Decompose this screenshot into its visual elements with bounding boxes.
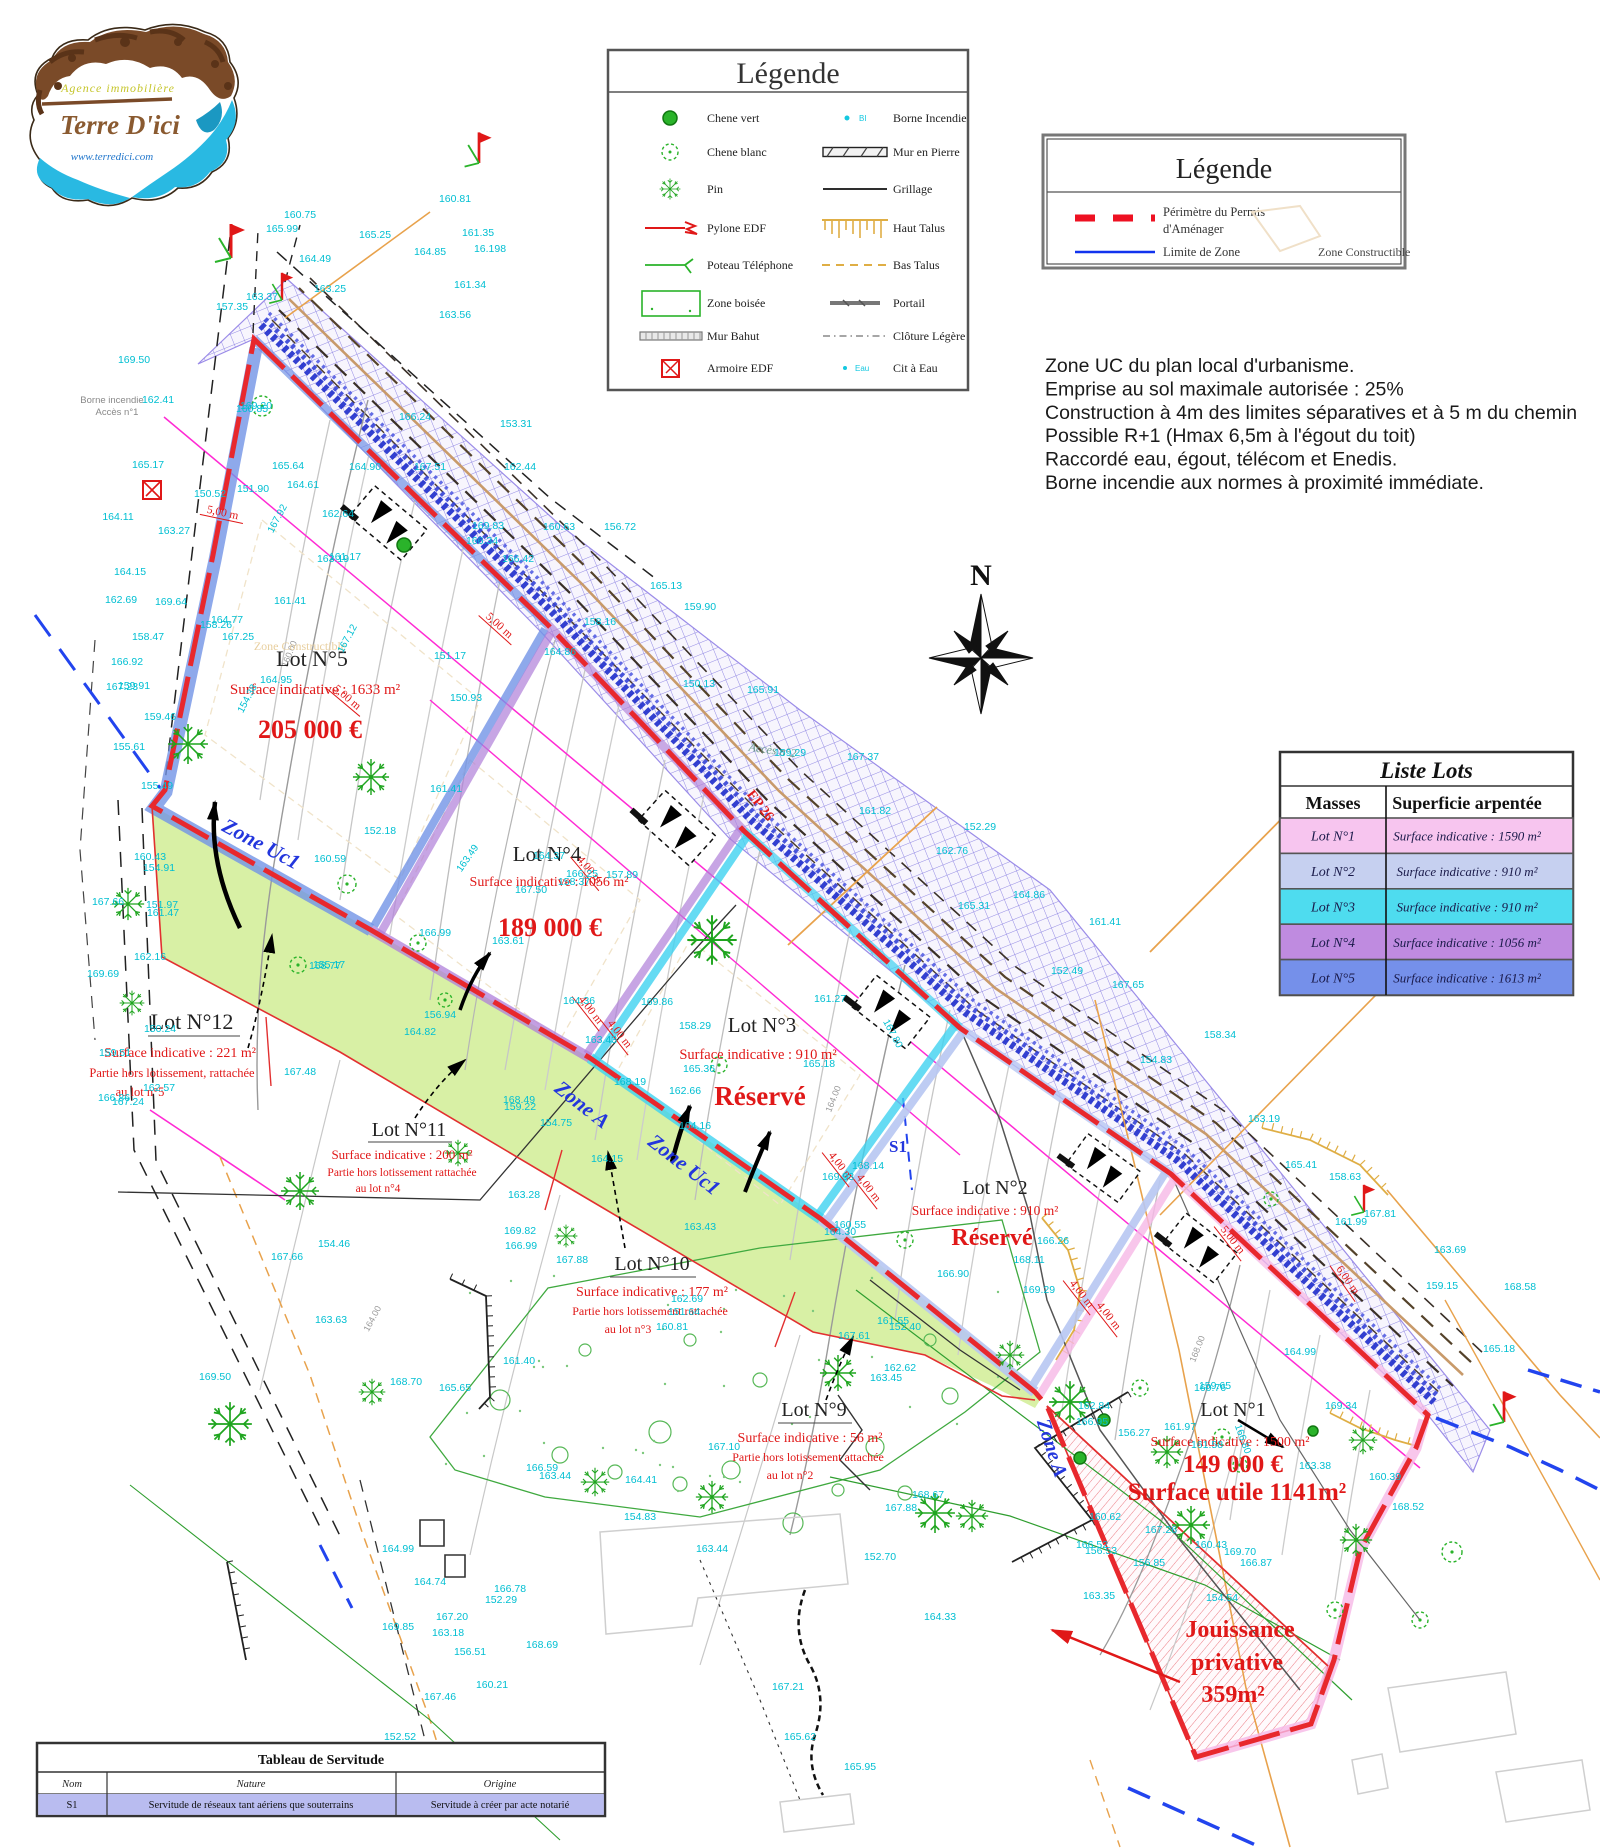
svg-text:167.81: 167.81: [1364, 1208, 1396, 1220]
svg-text:Accès n°1: Accès n°1: [96, 407, 139, 418]
svg-text:166.92: 166.92: [111, 656, 143, 668]
svg-text:Limite de Zone: Limite de Zone: [1163, 245, 1241, 259]
svg-text:Servitude à créer par acte not: Servitude à créer par acte notarié: [431, 1800, 570, 1811]
svg-text:169.50: 169.50: [199, 1371, 231, 1383]
svg-text:S1: S1: [889, 1137, 907, 1156]
svg-text:Surface utile 1141m²: Surface utile 1141m²: [1128, 1479, 1347, 1506]
svg-text:159.29: 159.29: [774, 747, 806, 759]
svg-text:165.13: 165.13: [650, 580, 682, 592]
svg-text:152.52: 152.52: [384, 1731, 416, 1743]
svg-text:152.29: 152.29: [964, 821, 996, 833]
svg-text:163.25: 163.25: [314, 283, 346, 295]
svg-text:Terre D'ici: Terre D'ici: [60, 110, 180, 140]
svg-text:169.93: 169.93: [822, 1171, 854, 1183]
svg-text:166.90: 166.90: [937, 1268, 969, 1280]
svg-text:163.69: 163.69: [1434, 1244, 1466, 1256]
svg-text:16.198: 16.198: [474, 243, 506, 255]
svg-text:152.70: 152.70: [864, 1551, 896, 1563]
svg-text:164.99: 164.99: [382, 1543, 414, 1555]
svg-text:161.41: 161.41: [274, 595, 306, 607]
svg-text:164.61: 164.61: [287, 479, 319, 491]
svg-text:167.66: 167.66: [92, 896, 124, 908]
svg-text:150.93: 150.93: [450, 692, 482, 704]
svg-text:160.39: 160.39: [1369, 1471, 1401, 1483]
svg-text:159.22: 159.22: [504, 1101, 536, 1113]
svg-text:Zone Constructible: Zone Constructible: [1318, 245, 1410, 259]
svg-text:164.82: 164.82: [404, 1026, 436, 1038]
svg-text:160.62: 160.62: [1089, 1511, 1121, 1523]
svg-text:164.77: 164.77: [211, 614, 243, 626]
svg-text:Partie hors lotissement rattac: Partie hors lotissement rattachée: [572, 1304, 728, 1318]
svg-text:164.86: 164.86: [1013, 889, 1045, 901]
svg-text:153.31: 153.31: [500, 418, 532, 430]
svg-text:165.99: 165.99: [266, 223, 298, 235]
svg-text:163.35: 163.35: [1083, 1590, 1115, 1602]
svg-text:Agence immobilière: Agence immobilière: [60, 81, 175, 95]
svg-text:Zone Constructible: Zone Constructible: [254, 639, 346, 653]
svg-text:169.82: 169.82: [504, 1225, 536, 1237]
svg-text:Surface indicative : 910 m²: Surface indicative : 910 m²: [1396, 864, 1538, 879]
svg-text:164.86: 164.86: [544, 646, 576, 658]
svg-text:161.41: 161.41: [430, 783, 462, 795]
svg-text:167.46: 167.46: [424, 1691, 456, 1703]
svg-text:162.66: 162.66: [669, 1085, 701, 1097]
svg-text:166.95: 166.95: [1076, 1416, 1108, 1428]
svg-text:Surface indicative : 910 m²: Surface indicative : 910 m²: [1396, 900, 1538, 915]
svg-text:Lot N°3: Lot N°3: [728, 1013, 796, 1037]
svg-text:161.82: 161.82: [859, 805, 891, 817]
svg-text:163.27: 163.27: [158, 525, 190, 537]
svg-text:Légende: Légende: [1176, 154, 1272, 185]
svg-text:Lot N°10: Lot N°10: [614, 1253, 689, 1275]
svg-text:Construction à 4m des limites: Construction à 4m des limites séparative…: [1045, 402, 1577, 424]
svg-text:166.34: 166.34: [466, 535, 498, 547]
svg-text:168.11: 168.11: [1013, 1254, 1044, 1266]
svg-text:152.40: 152.40: [889, 1321, 921, 1333]
svg-text:168.70: 168.70: [390, 1376, 422, 1388]
svg-text:160.63: 160.63: [543, 521, 575, 533]
svg-text:149 000 €: 149 000 €: [1183, 1451, 1284, 1478]
svg-text:166.99: 166.99: [505, 1240, 537, 1252]
svg-text:Surface indicative : 56 m²: Surface indicative : 56 m²: [738, 1431, 883, 1446]
svg-text:Servitude de réseaux tant aéri: Servitude de réseaux tant aériens que so…: [149, 1800, 354, 1811]
svg-text:359m²: 359m²: [1201, 1682, 1264, 1708]
svg-text:152.49: 152.49: [1051, 965, 1083, 977]
svg-text:165.62: 165.62: [784, 1731, 816, 1743]
svg-text:152.29: 152.29: [485, 1594, 517, 1606]
svg-text:163.61: 163.61: [492, 935, 524, 947]
svg-text:159.46: 159.46: [144, 711, 176, 723]
svg-text:167.65: 167.65: [1112, 979, 1144, 991]
svg-text:Partie hors lotissement, ratta: Partie hors lotissement, rattachée: [89, 1066, 255, 1080]
svg-text:Surface indicative : 200 m²: Surface indicative : 200 m²: [331, 1147, 472, 1162]
svg-text:Bas Talus: Bas Talus: [893, 258, 940, 272]
svg-text:164.74: 164.74: [414, 1576, 446, 1588]
svg-text:165.18: 165.18: [1483, 1343, 1515, 1355]
svg-text:166.42: 166.42: [502, 553, 534, 565]
svg-text:Possible R+1 (Hmax 6,5m à l'ég: Possible R+1 (Hmax 6,5m à l'égout du toi…: [1045, 425, 1416, 447]
svg-text:Lot N°2: Lot N°2: [962, 1177, 1027, 1199]
svg-text:154.54: 154.54: [1206, 1592, 1238, 1604]
svg-text:160.85: 160.85: [236, 403, 268, 415]
svg-text:168.58: 168.58: [1504, 1281, 1536, 1293]
svg-text:Lot N°1: Lot N°1: [1200, 1399, 1265, 1421]
svg-text:164.85: 164.85: [414, 246, 446, 258]
svg-text:Partie hors lotissement rattac: Partie hors lotissement rattachée: [327, 1167, 476, 1179]
svg-text:Surface indicative : 1590 m²: Surface indicative : 1590 m²: [1393, 829, 1542, 844]
svg-text:157.89: 157.89: [606, 869, 638, 881]
svg-text:165.64: 165.64: [272, 460, 304, 472]
svg-text:160.81: 160.81: [439, 193, 471, 205]
svg-text:Borne incendie aux normes à pr: Borne incendie aux normes à proximité im…: [1045, 472, 1484, 494]
svg-text:167.26: 167.26: [1145, 1524, 1177, 1536]
svg-text:Périmètre du Permis: Périmètre du Permis: [1163, 205, 1265, 219]
svg-text:164.99: 164.99: [1284, 1346, 1316, 1358]
svg-text:161.40: 161.40: [503, 1355, 535, 1367]
svg-text:164.33: 164.33: [924, 1611, 956, 1623]
svg-text:Borne Incendie: Borne Incendie: [893, 111, 967, 125]
svg-text:Réservé: Réservé: [714, 1081, 805, 1111]
svg-text:158.37: 158.37: [558, 876, 590, 888]
svg-text:Surface indicative : 1056 m²: Surface indicative : 1056 m²: [1393, 935, 1542, 950]
svg-text:Poteau Téléphone: Poteau Téléphone: [707, 258, 793, 272]
svg-text:150.52: 150.52: [194, 488, 226, 500]
svg-text:161.41: 161.41: [1089, 916, 1121, 928]
svg-text:151.90: 151.90: [237, 483, 269, 495]
svg-text:N: N: [970, 559, 992, 592]
svg-text:160.21: 160.21: [476, 1679, 508, 1691]
svg-text:205 000 €: 205 000 €: [258, 715, 362, 744]
svg-text:163.45: 163.45: [870, 1372, 902, 1384]
svg-text:157.35: 157.35: [216, 301, 248, 313]
svg-text:163.28: 163.28: [508, 1189, 540, 1201]
svg-text:165.18: 165.18: [803, 1058, 835, 1070]
svg-text:168.19: 168.19: [614, 1076, 646, 1088]
svg-text:163.63: 163.63: [315, 1314, 347, 1326]
svg-text:Clôture Légère: Clôture Légère: [893, 329, 965, 343]
svg-text:155.61: 155.61: [113, 741, 145, 753]
svg-text:Borne incendie: Borne incendie: [80, 395, 143, 406]
svg-text:Surface indicative : 177 m²: Surface indicative : 177 m²: [576, 1285, 728, 1300]
svg-text:Mur en Pierre: Mur en Pierre: [893, 145, 960, 159]
svg-text:166.59: 166.59: [526, 1462, 558, 1474]
svg-text:161.17: 161.17: [329, 551, 361, 563]
svg-text:Lot N°4: Lot N°4: [1310, 936, 1355, 951]
svg-text:Lot N°2: Lot N°2: [1310, 865, 1355, 880]
svg-text:162.64: 162.64: [322, 508, 354, 520]
svg-text:162.41: 162.41: [142, 394, 174, 406]
svg-text:Pylone EDF: Pylone EDF: [707, 221, 766, 235]
svg-text:158.16: 158.16: [584, 616, 616, 628]
svg-text:Masses: Masses: [1306, 793, 1361, 813]
svg-text:www.terredici.com: www.terredici.com: [71, 151, 154, 163]
svg-text:158.47: 158.47: [132, 631, 164, 643]
svg-text:163.38: 163.38: [1299, 1460, 1331, 1472]
svg-text:167.25: 167.25: [222, 631, 254, 643]
svg-text:158.34: 158.34: [1204, 1029, 1236, 1041]
svg-text:Portail: Portail: [893, 296, 926, 310]
svg-text:privative: privative: [1191, 1650, 1283, 1676]
svg-text:156.94: 156.94: [424, 1009, 456, 1021]
svg-text:163.43: 163.43: [684, 1221, 716, 1233]
svg-text:165.65: 165.65: [439, 1382, 471, 1394]
svg-text:166.99: 166.99: [419, 927, 451, 939]
svg-text:162.76: 162.76: [936, 845, 968, 857]
svg-text:162.69: 162.69: [671, 1293, 703, 1305]
svg-text:165.41: 165.41: [1285, 1159, 1317, 1171]
svg-text:165.25: 165.25: [359, 229, 391, 241]
svg-text:169.70: 169.70: [1224, 1546, 1256, 1558]
svg-text:167.48: 167.48: [284, 1066, 316, 1078]
svg-text:164.36: 164.36: [563, 995, 595, 1007]
svg-text:Eau: Eau: [855, 364, 869, 373]
svg-text:Surface indicative : 1056 m²: Surface indicative : 1056 m²: [470, 875, 629, 890]
svg-text:166.24: 166.24: [399, 411, 431, 423]
svg-text:167.50: 167.50: [515, 884, 547, 896]
svg-text:Zone UC du plan local d'urbani: Zone UC du plan local d'urbanisme.: [1045, 355, 1354, 377]
svg-text:160.75: 160.75: [284, 209, 316, 221]
svg-text:164.15: 164.15: [114, 566, 146, 578]
svg-text:167.20: 167.20: [436, 1611, 468, 1623]
svg-text:163.19: 163.19: [1248, 1113, 1280, 1125]
svg-text:Emprise au sol maximale autori: Emprise au sol maximale autorisée : 25%: [1045, 378, 1404, 400]
svg-text:Légende: Légende: [736, 57, 839, 90]
svg-text:Chene blanc: Chene blanc: [707, 145, 767, 159]
svg-text:Surface indicative : 1613 m²: Surface indicative : 1613 m²: [1393, 970, 1542, 985]
svg-text:156.51: 156.51: [454, 1646, 486, 1658]
svg-text:151.64: 151.64: [668, 1306, 700, 1318]
svg-text:162.57: 162.57: [143, 1082, 175, 1094]
svg-text:au lot n°4: au lot n°4: [356, 1183, 401, 1195]
svg-text:167.23: 167.23: [106, 681, 138, 693]
svg-text:166.87: 166.87: [1240, 1557, 1272, 1569]
svg-text:169.85: 169.85: [382, 1621, 414, 1633]
svg-text:168.67: 168.67: [912, 1489, 944, 1501]
svg-text:162.16: 162.16: [134, 951, 166, 963]
svg-text:165.31: 165.31: [958, 900, 990, 912]
svg-text:164.90: 164.90: [349, 461, 381, 473]
svg-text:169.86: 169.86: [641, 996, 673, 1008]
svg-text:159.15: 159.15: [1426, 1280, 1458, 1292]
svg-text:163.18: 163.18: [432, 1627, 464, 1639]
svg-text:154.46: 154.46: [318, 1238, 350, 1250]
svg-text:169.69: 169.69: [87, 968, 119, 980]
svg-text:160.43: 160.43: [1195, 1539, 1227, 1551]
svg-text:160.55: 160.55: [834, 1219, 866, 1231]
svg-text:Liste Lots: Liste Lots: [1379, 758, 1473, 783]
svg-text:Lot N°3: Lot N°3: [1310, 901, 1355, 916]
svg-text:162.69: 162.69: [105, 594, 137, 606]
svg-text:166.26: 166.26: [1037, 1235, 1069, 1247]
svg-text:164.11: 164.11: [102, 511, 133, 523]
svg-text:168.14: 168.14: [852, 1160, 884, 1172]
svg-text:Lot N°9: Lot N°9: [781, 1399, 846, 1421]
svg-text:158.63: 158.63: [1329, 1171, 1361, 1183]
svg-text:Lot N°11: Lot N°11: [372, 1119, 446, 1141]
svg-text:156.85: 156.85: [1133, 1557, 1165, 1569]
svg-text:163.56: 163.56: [439, 309, 471, 321]
svg-text:164.16: 164.16: [679, 1120, 711, 1132]
svg-text:d'Aménager: d'Aménager: [1163, 222, 1224, 236]
svg-text:169.83: 169.83: [472, 520, 504, 532]
svg-text:161.27: 161.27: [814, 993, 846, 1005]
svg-text:Zone boisée: Zone boisée: [707, 296, 765, 310]
svg-text:au lot n°2: au lot n°2: [767, 1468, 814, 1482]
svg-text:165.95: 165.95: [844, 1761, 876, 1773]
svg-text:154.83: 154.83: [1140, 1054, 1172, 1066]
svg-text:151.17: 151.17: [434, 650, 466, 662]
svg-text:164.37: 164.37: [533, 850, 565, 862]
svg-text:167.61: 167.61: [838, 1330, 870, 1342]
svg-text:167.10: 167.10: [708, 1441, 740, 1453]
svg-text:161.34: 161.34: [454, 279, 486, 291]
svg-text:au lot n°3: au lot n°3: [605, 1322, 652, 1336]
svg-text:S1: S1: [66, 1800, 77, 1811]
svg-text:169.29: 169.29: [1023, 1284, 1055, 1296]
svg-text:167.37: 167.37: [847, 751, 879, 763]
svg-text:Raccordé eau, égout, télécom e: Raccordé eau, égout, télécom et Enedis.: [1045, 449, 1397, 471]
svg-text:160.76: 160.76: [1194, 1382, 1226, 1394]
svg-text:163.44: 163.44: [696, 1543, 728, 1555]
svg-text:166.78: 166.78: [494, 1583, 526, 1595]
svg-text:154.91: 154.91: [143, 862, 175, 874]
svg-text:Armoire EDF: Armoire EDF: [707, 361, 774, 375]
svg-text:Surface indicative : 910 m²: Surface indicative : 910 m²: [912, 1203, 1059, 1218]
svg-text:165.36: 165.36: [683, 1063, 715, 1075]
svg-text:167.88: 167.88: [556, 1254, 588, 1266]
svg-text:161.47: 161.47: [147, 907, 179, 919]
svg-text:152.18: 152.18: [364, 825, 396, 837]
svg-text:150.24: 150.24: [144, 1023, 176, 1035]
svg-text:155.49: 155.49: [141, 780, 173, 792]
svg-text:168.77: 168.77: [309, 960, 341, 972]
svg-text:167.24: 167.24: [112, 1096, 144, 1108]
svg-text:167.51: 167.51: [414, 461, 446, 473]
svg-text:164.49: 164.49: [299, 253, 331, 265]
svg-text:168.52: 168.52: [1392, 1501, 1424, 1513]
svg-text:154.75: 154.75: [540, 1117, 572, 1129]
svg-text:164.95: 164.95: [260, 674, 292, 686]
svg-text:Nature: Nature: [236, 1779, 266, 1790]
svg-text:Origine: Origine: [484, 1779, 517, 1790]
svg-text:Pin: Pin: [707, 182, 723, 196]
svg-text:156.53: 156.53: [1085, 1545, 1117, 1557]
svg-text:165.17: 165.17: [132, 459, 164, 471]
svg-text:Tableau de Servitude: Tableau de Servitude: [258, 1753, 384, 1768]
svg-text:159.90: 159.90: [684, 601, 716, 613]
svg-text:167.88: 167.88: [885, 1502, 917, 1514]
svg-text:156.72: 156.72: [604, 521, 636, 533]
svg-text:BI: BI: [859, 114, 867, 123]
svg-text:169.34: 169.34: [1325, 1400, 1357, 1412]
svg-text:Lot N°5: Lot N°5: [1310, 971, 1355, 986]
svg-text:Nom: Nom: [61, 1779, 82, 1790]
svg-text:164.15: 164.15: [591, 1153, 623, 1165]
svg-text:Réservé: Réservé: [951, 1225, 1033, 1251]
svg-text:162.84: 162.84: [1078, 1400, 1110, 1412]
svg-text:165.91: 165.91: [747, 684, 779, 696]
svg-text:Surface indicative : 1500 m²: Surface indicative : 1500 m²: [1151, 1435, 1310, 1450]
svg-text:167.21: 167.21: [772, 1681, 804, 1693]
svg-text:164.41: 164.41: [625, 1474, 657, 1486]
svg-text:169.50: 169.50: [118, 354, 150, 366]
svg-text:163.43: 163.43: [585, 1034, 617, 1046]
svg-text:159.51: 159.51: [99, 1047, 131, 1059]
svg-text:Superficie arpentée: Superficie arpentée: [1392, 793, 1541, 813]
svg-text:161.35: 161.35: [462, 227, 494, 239]
svg-text:162.44: 162.44: [504, 461, 536, 473]
svg-text:160.81: 160.81: [656, 1321, 688, 1333]
svg-text:Partie hors lotissement attach: Partie hors lotissement attachée: [732, 1450, 884, 1464]
svg-text:Mur Bahut: Mur Bahut: [707, 329, 760, 343]
svg-text:Chene vert: Chene vert: [707, 111, 760, 125]
svg-text:160.59: 160.59: [314, 853, 346, 865]
svg-text:161.99: 161.99: [1335, 1216, 1367, 1228]
svg-text:158.29: 158.29: [679, 1020, 711, 1032]
svg-text:156.27: 156.27: [1118, 1427, 1150, 1439]
svg-text:161.58: 161.58: [1191, 1439, 1223, 1451]
svg-text:167.66: 167.66: [271, 1251, 303, 1263]
svg-text:168.69: 168.69: [526, 1639, 558, 1651]
svg-text:154.83: 154.83: [624, 1511, 656, 1523]
svg-text:Grillage: Grillage: [893, 182, 932, 196]
svg-text:169.64: 169.64: [155, 596, 187, 608]
svg-text:Jouissance: Jouissance: [1185, 1617, 1295, 1643]
svg-text:150.13: 150.13: [683, 678, 715, 690]
svg-text:161.97: 161.97: [1164, 1421, 1196, 1433]
svg-text:163.37: 163.37: [246, 291, 278, 303]
svg-text:Haut Talus: Haut Talus: [893, 221, 945, 235]
svg-text:Cit à Eau: Cit à Eau: [893, 361, 938, 375]
svg-text:Lot N°1: Lot N°1: [1310, 830, 1355, 845]
